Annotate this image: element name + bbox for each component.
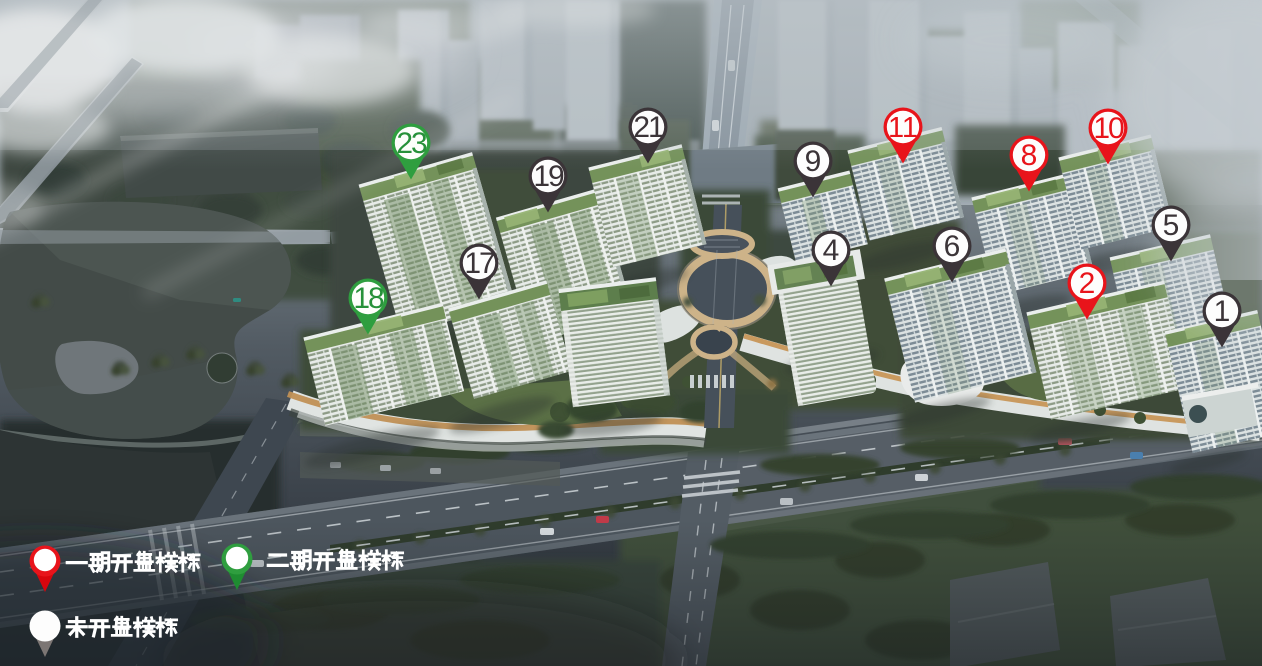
svg-text:5: 5 [1163, 209, 1180, 242]
svg-text:9: 9 [805, 145, 822, 178]
svg-text:10: 10 [1093, 112, 1124, 145]
svg-text:23: 23 [396, 127, 427, 160]
svg-text:6: 6 [944, 230, 961, 263]
svg-text:4: 4 [823, 234, 840, 267]
svg-text:18: 18 [353, 282, 384, 315]
svg-text:2: 2 [1079, 267, 1096, 300]
svg-text:17: 17 [464, 247, 495, 280]
svg-text:19: 19 [533, 160, 564, 193]
svg-text:1: 1 [1214, 295, 1231, 328]
svg-text:21: 21 [633, 111, 664, 144]
svg-text:11: 11 [888, 112, 918, 144]
svg-text:8: 8 [1021, 139, 1038, 172]
